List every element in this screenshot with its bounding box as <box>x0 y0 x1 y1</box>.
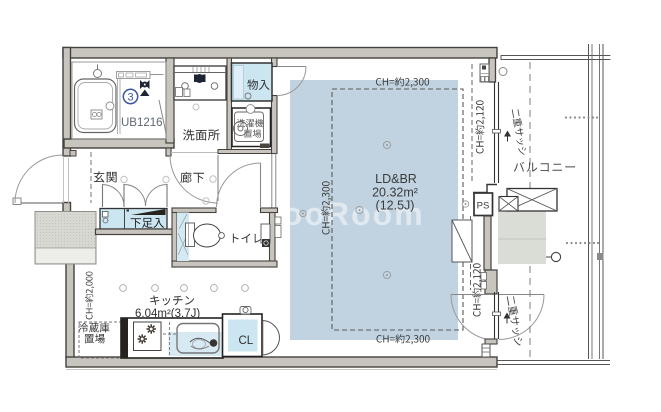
svg-text:LD&BR: LD&BR <box>375 172 417 186</box>
svg-text:UB1216: UB1216 <box>121 117 163 129</box>
svg-text:20.32m²: 20.32m² <box>372 186 418 200</box>
svg-text:PS: PS <box>477 201 490 212</box>
svg-text:(12.5J): (12.5J) <box>376 199 415 213</box>
svg-text:CL: CL <box>239 335 254 347</box>
svg-text:3: 3 <box>127 92 133 104</box>
